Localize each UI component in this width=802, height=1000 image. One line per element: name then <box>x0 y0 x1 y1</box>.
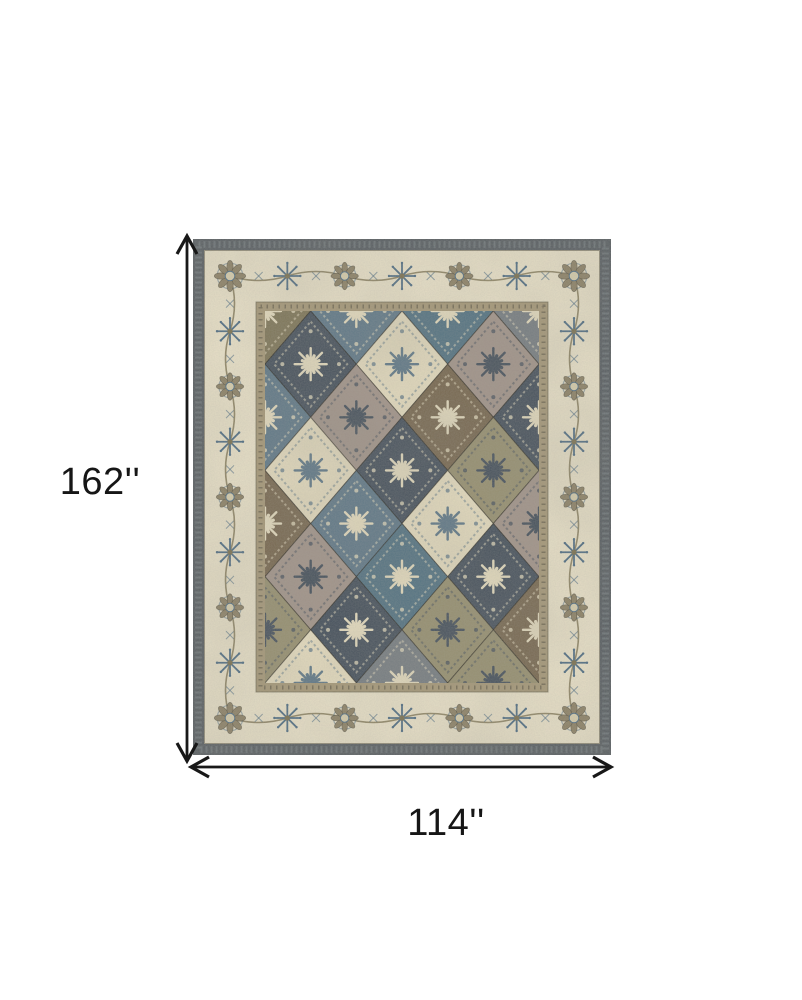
width-dimension-label: 114'' <box>384 804 508 842</box>
height-arrow <box>177 236 197 761</box>
product-dimension-diagram: 162'' 114'' <box>0 0 802 1000</box>
height-dimension-label: 162'' <box>38 463 162 501</box>
width-arrow <box>191 757 611 777</box>
